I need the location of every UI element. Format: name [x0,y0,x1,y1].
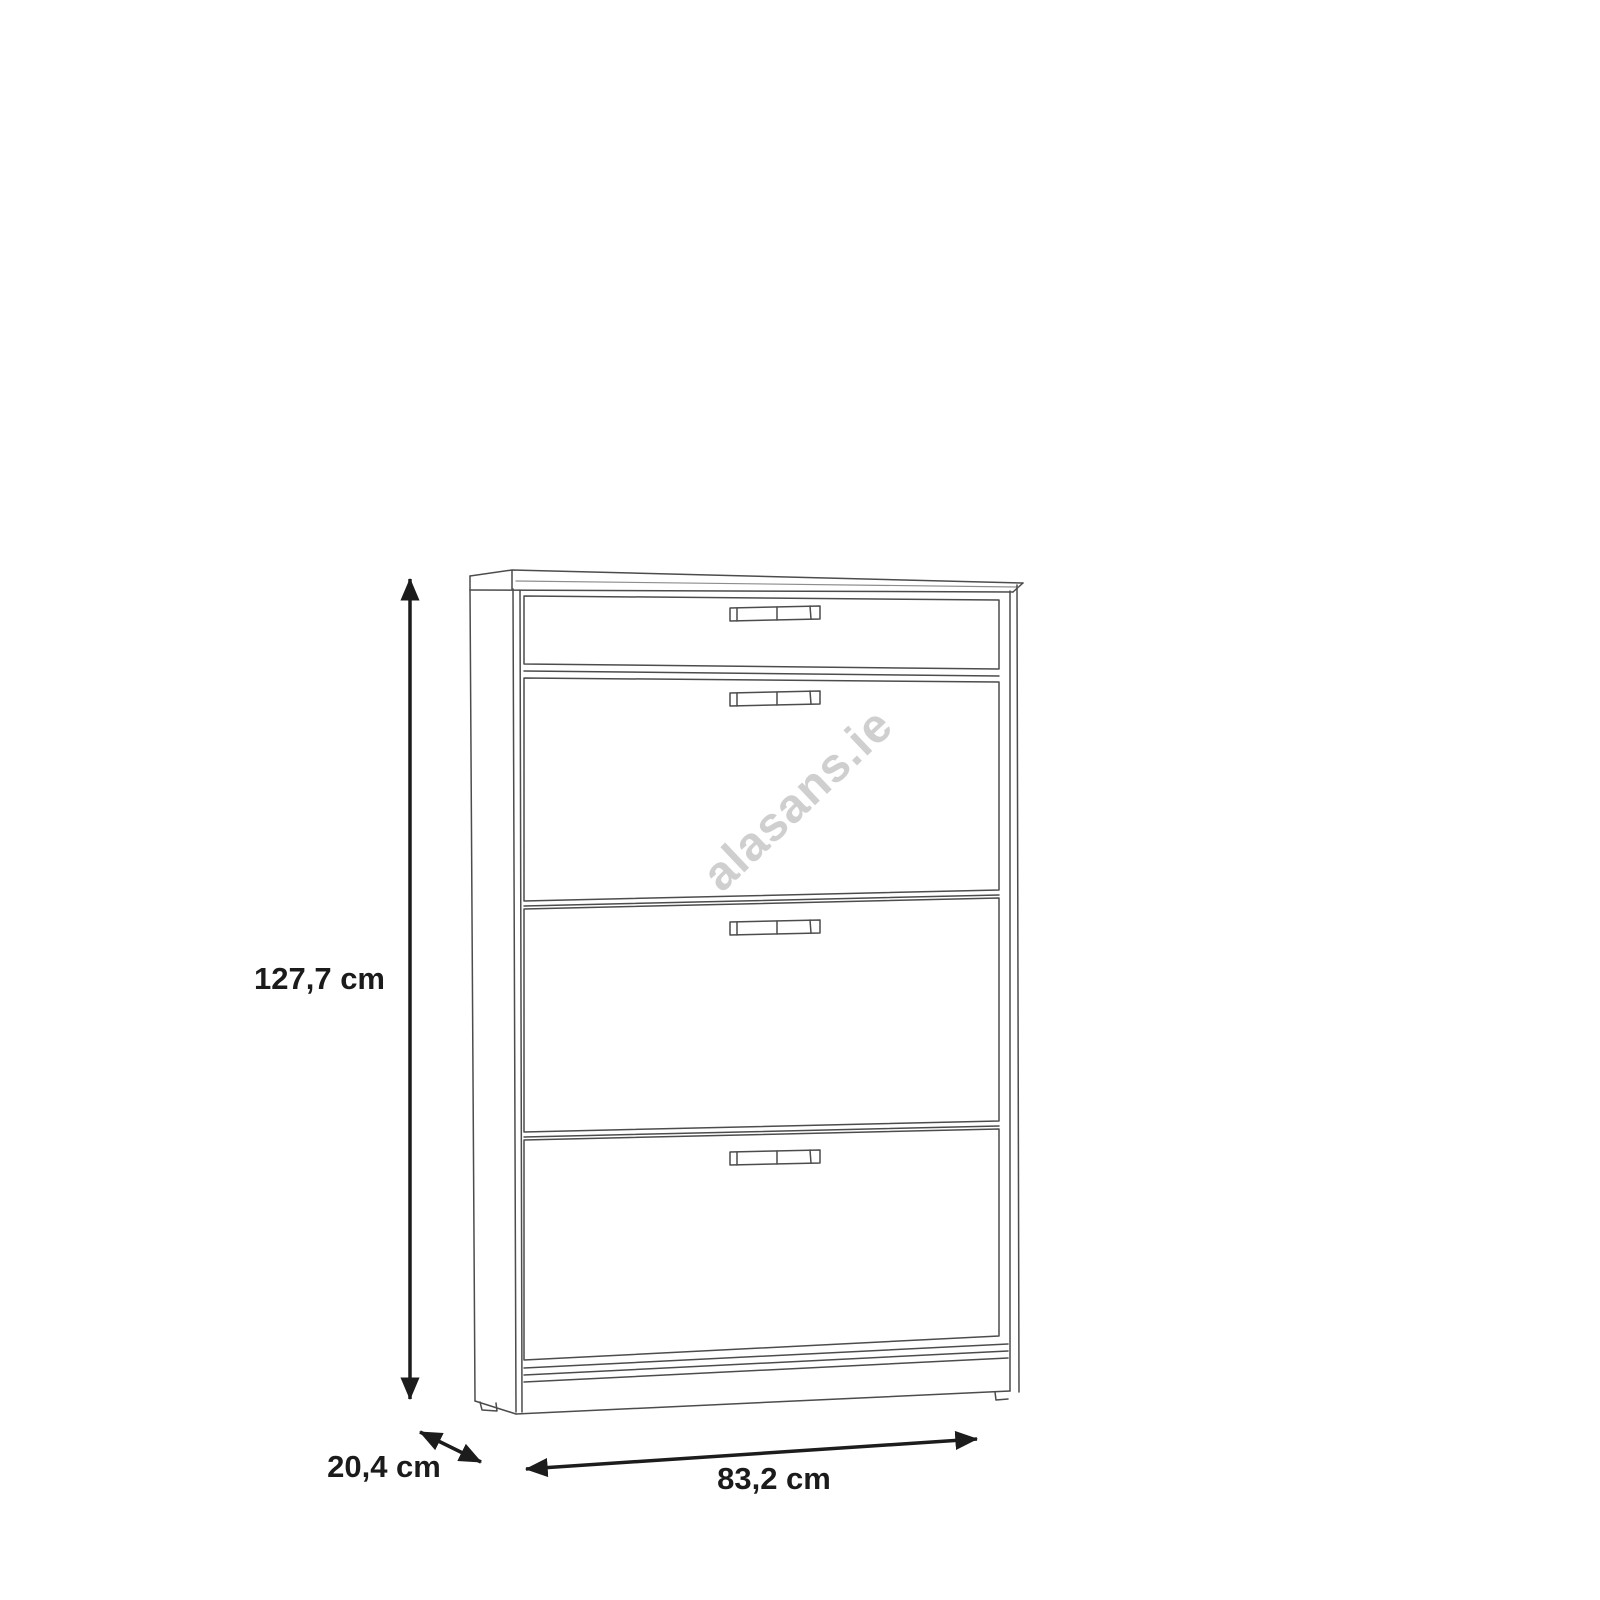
shelf-edge-under-drawer [524,671,999,676]
cabinet-left-side-panel [470,589,522,1414]
cabinet-flap-door-1 [524,678,999,901]
shelf-edge-under-flap-2 [524,1126,999,1137]
depth-dimension-label: 20,4 cm [274,1450,494,1484]
cabinet-foot-right [995,1392,1008,1400]
flap-2-handle [730,920,820,935]
cabinet-line-drawing [0,0,1600,1600]
height-dimension-label: 127,7 cm [254,962,385,996]
cabinet-bottom-edge [516,1391,1010,1414]
product-diagram-canvas: alasans.ie 127,7 cm 20,4 cm 83,2 cm [0,0,1600,1600]
flap-3-handle [730,1150,820,1165]
cabinet-flap-door-2 [524,898,999,1132]
drawer-handle [730,606,820,621]
shelf-edge-under-flap-1 [524,895,999,906]
cabinet-plinth [524,1344,1008,1382]
flap-1-handle [730,691,820,706]
cabinet-top-slab [470,570,1023,592]
width-dimension-label: 83,2 cm [664,1462,884,1496]
